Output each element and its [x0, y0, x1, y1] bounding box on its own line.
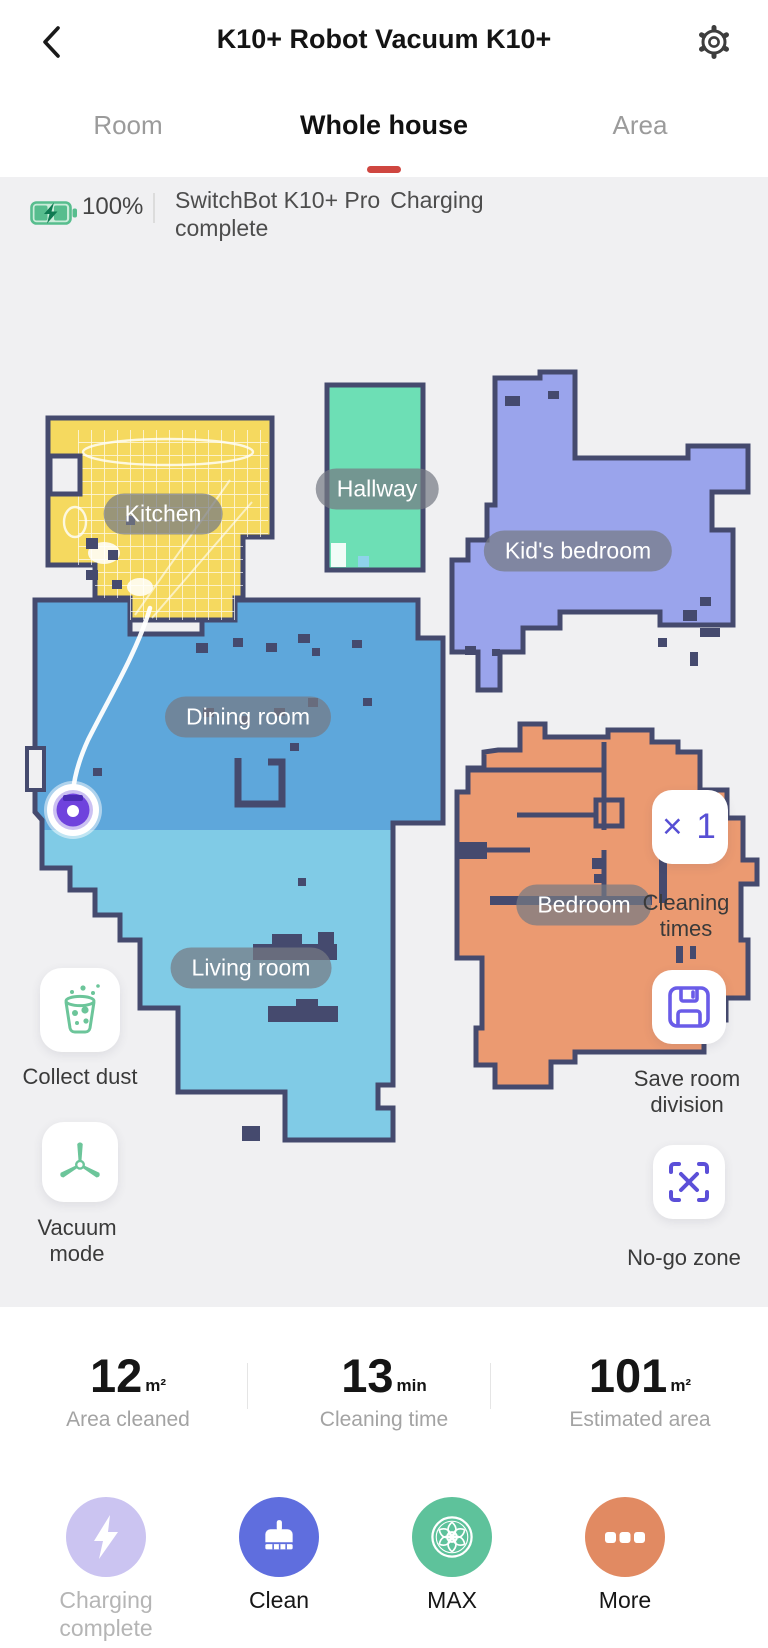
stat-label: Area cleaned — [0, 1408, 256, 1432]
more-label: More — [550, 1587, 700, 1615]
stat-area-cleaned: 12m² Area cleaned — [0, 1352, 256, 1432]
max-label: MAX — [377, 1587, 527, 1615]
room-label-dining-room[interactable]: Dining room — [165, 697, 331, 738]
cleaning-times-button[interactable]: × 1 — [652, 790, 728, 864]
save-room-division-button[interactable] — [652, 970, 726, 1044]
settings-button[interactable] — [694, 22, 734, 62]
charging-complete-label: Charging complete — [46, 1587, 166, 1642]
dust-bin-icon — [52, 980, 108, 1040]
stat-cleaning-time: 13min Cleaning time — [256, 1352, 512, 1432]
kitchen-notch — [50, 456, 80, 494]
stat-value: 101 — [589, 1352, 667, 1399]
no-go-zone-button[interactable] — [653, 1145, 725, 1219]
collect-dust-label: Collect dust — [10, 1064, 150, 1090]
header: K10+ Robot Vacuum K10+ — [0, 0, 768, 86]
stat-value: 13 — [341, 1352, 393, 1399]
room-label-kitchen[interactable]: Kitchen — [104, 494, 223, 535]
fan-wheel-icon — [424, 1509, 480, 1565]
fan-blade-icon — [52, 1133, 108, 1191]
bottom-panel: 12m² Area cleaned 13min Cleaning time 10… — [0, 1307, 768, 1648]
cleaning-stats: 12m² Area cleaned 13min Cleaning time 10… — [0, 1352, 768, 1432]
charging-complete-button — [66, 1497, 146, 1577]
max-button[interactable] — [412, 1497, 492, 1577]
map-notch — [27, 748, 44, 790]
tab-area[interactable]: Area — [512, 100, 768, 177]
status-divider — [153, 193, 155, 223]
more-button[interactable] — [585, 1497, 665, 1577]
stat-value: 12 — [90, 1352, 142, 1399]
save-room-division-label: Save room division — [622, 1066, 752, 1119]
stat-label: Estimated area — [512, 1408, 768, 1432]
tab-room[interactable]: Room — [0, 100, 256, 177]
app-screen: K10+ Robot Vacuum K10+ Room Whole house … — [0, 0, 768, 1648]
battery-percent: 100% — [82, 193, 143, 221]
cleaning-times-label: Cleaning times — [616, 890, 756, 943]
device-name: SwitchBot K10+ Pro — [175, 187, 380, 213]
vacuum-mode-button[interactable] — [42, 1122, 118, 1202]
stat-unit: m² — [145, 1376, 166, 1399]
more-dots-icon — [601, 1513, 649, 1561]
dustpan-icon — [253, 1511, 305, 1563]
view-tabs: Room Whole house Area — [0, 100, 768, 177]
lightning-icon — [84, 1511, 128, 1563]
page-title: K10+ Robot Vacuum K10+ — [0, 24, 768, 55]
stat-divider — [490, 1363, 491, 1409]
room-label-kids-bedroom[interactable]: Kid's bedroom — [484, 531, 672, 572]
clean-button[interactable] — [239, 1497, 319, 1577]
floppy-disk-icon — [666, 984, 712, 1030]
stat-unit: min — [397, 1376, 427, 1399]
battery-icon — [30, 199, 78, 227]
no-go-zone-label: No-go zone — [604, 1245, 764, 1271]
collect-dust-button[interactable] — [40, 968, 120, 1052]
stat-unit: m² — [670, 1376, 691, 1399]
room-label-hallway[interactable]: Hallway — [316, 469, 439, 510]
gear-icon — [695, 23, 733, 61]
cleaning-times-value: × 1 — [662, 807, 718, 847]
clean-label: Clean — [204, 1587, 354, 1615]
tab-whole-house[interactable]: Whole house — [256, 100, 512, 177]
stat-label: Cleaning time — [256, 1408, 512, 1432]
no-go-zone-icon — [667, 1160, 711, 1204]
robot-marker[interactable] — [44, 781, 102, 839]
room-label-living-room[interactable]: Living room — [171, 948, 332, 989]
status-text: SwitchBot K10+ ProCharging complete — [175, 186, 495, 242]
vacuum-mode-label: Vacuum mode — [7, 1215, 147, 1268]
stat-divider — [247, 1363, 248, 1409]
stat-estimated-area: 101m² Estimated area — [512, 1352, 768, 1432]
map-section: 100% SwitchBot K10+ ProCharging complete — [0, 177, 768, 1307]
